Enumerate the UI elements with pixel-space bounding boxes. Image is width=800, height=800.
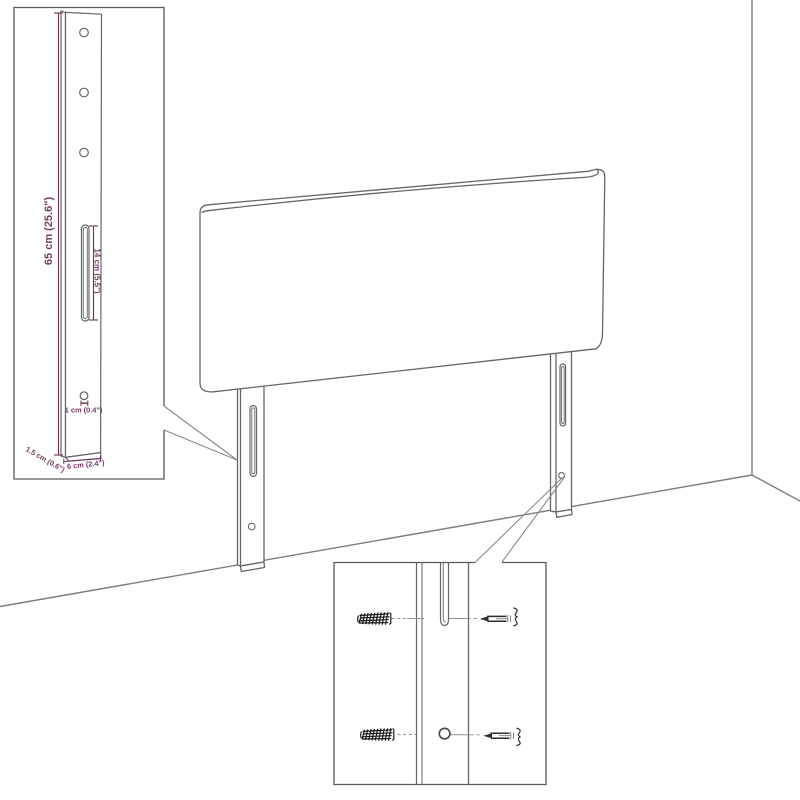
svg-text:14 cm (5.5"): 14 cm (5.5") bbox=[93, 248, 102, 293]
svg-text:1 cm (0.4"): 1 cm (0.4") bbox=[65, 406, 103, 415]
svg-text:65 cm (25.6"): 65 cm (25.6") bbox=[43, 197, 55, 266]
